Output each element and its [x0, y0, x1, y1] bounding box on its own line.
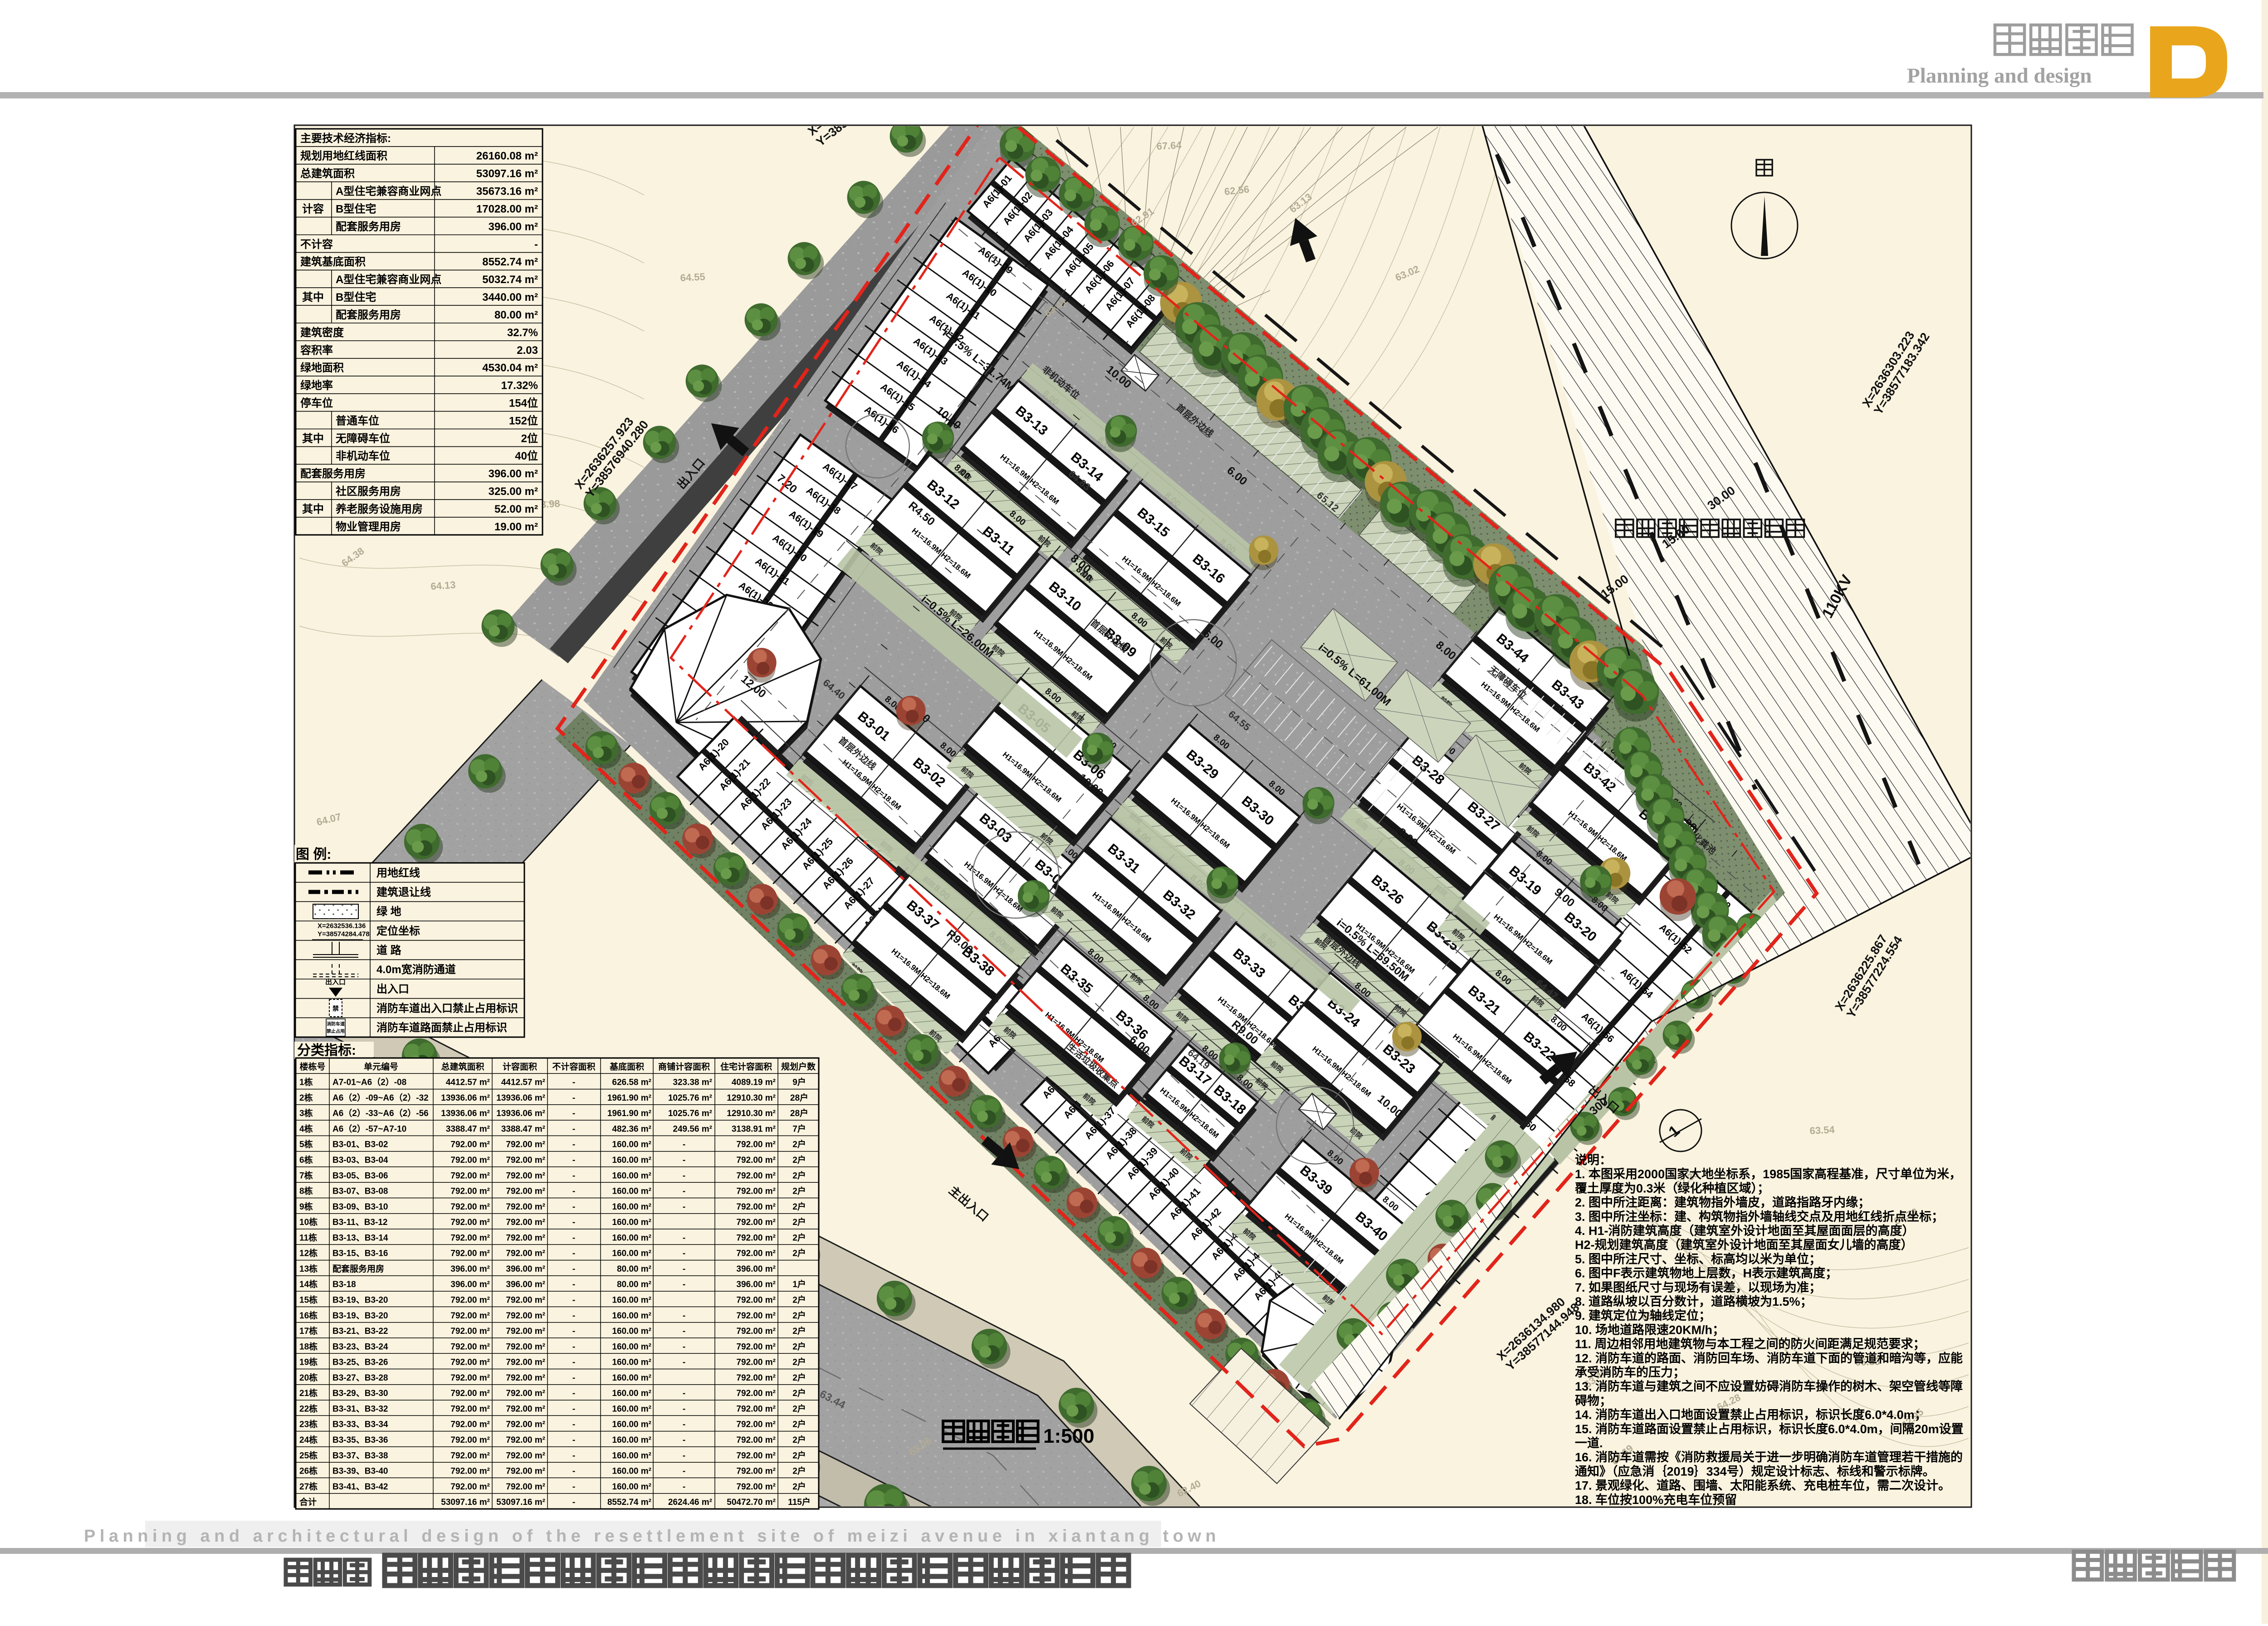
svg-text:53097.16 m²: 53097.16 m²	[476, 168, 538, 180]
svg-text:249.56 m²: 249.56 m²	[673, 1125, 712, 1134]
svg-text:H2-规划建筑高度（建筑室外设计地面至其屋面女儿墙的高度）: H2-规划建筑高度（建筑室外设计地面至其屋面女儿墙的高度）	[1575, 1238, 1913, 1252]
svg-text:792.00 m²: 792.00 m²	[450, 1327, 490, 1336]
svg-text:792.00 m²: 792.00 m²	[450, 1451, 490, 1460]
svg-text:-: -	[683, 1342, 685, 1352]
svg-text:13936.06 m²: 13936.06 m²	[496, 1093, 545, 1103]
svg-text:792.00 m²: 792.00 m²	[506, 1187, 545, 1196]
svg-text:160.00 m²: 160.00 m²	[612, 1482, 651, 1492]
svg-text:B3-25、B3-26: B3-25、B3-26	[332, 1358, 388, 1367]
svg-text:5栋: 5栋	[299, 1139, 313, 1150]
svg-text:160.00 m²: 160.00 m²	[612, 1249, 651, 1259]
svg-text:160.00 m²: 160.00 m²	[612, 1373, 651, 1383]
svg-text:B3-15、B3-16: B3-15、B3-16	[332, 1249, 388, 1259]
svg-text:80.00 m²: 80.00 m²	[494, 309, 538, 321]
svg-text:无障碍车位: 无障碍车位	[336, 432, 390, 445]
svg-text:19栋: 19栋	[299, 1357, 318, 1367]
svg-text:792.00 m²: 792.00 m²	[506, 1233, 545, 1243]
svg-text:2户: 2户	[792, 1481, 806, 1492]
svg-text:不计容面积: 不计容面积	[552, 1061, 595, 1072]
svg-text:80.00 m²: 80.00 m²	[617, 1280, 651, 1289]
svg-text:792.00 m²: 792.00 m²	[450, 1187, 490, 1196]
svg-text:10. 场地道路限速20KM/h；: 10. 场地道路限速20KM/h；	[1575, 1322, 1725, 1337]
svg-text:2位: 2位	[521, 432, 538, 445]
svg-text:792.00 m²: 792.00 m²	[736, 1389, 776, 1398]
svg-text:1栋: 1栋	[299, 1077, 313, 1087]
svg-text:-: -	[572, 1187, 575, 1196]
svg-text:160.00 m²: 160.00 m²	[612, 1171, 651, 1180]
svg-text:25栋: 25栋	[299, 1450, 318, 1460]
svg-text:规划用地红线面积: 规划用地红线面积	[300, 150, 387, 162]
svg-text:27栋: 27栋	[299, 1481, 318, 1492]
svg-text:-: -	[534, 238, 538, 250]
svg-text:-: -	[572, 1327, 575, 1336]
svg-text:2户: 2户	[792, 1326, 806, 1336]
svg-text:8552.74 m²: 8552.74 m²	[482, 256, 538, 268]
svg-text:12. 消防车道的路面、消防回车场、消防车道下面的管道和暗沟: 12. 消防车道的路面、消防回车场、消防车道下面的管道和暗沟等，应能	[1575, 1351, 1963, 1365]
svg-text:B3-35、B3-36: B3-35、B3-36	[332, 1435, 388, 1445]
svg-text:160.00 m²: 160.00 m²	[612, 1342, 651, 1352]
svg-text:单元编号: 单元编号	[364, 1061, 398, 1072]
svg-text:15. 消防车道路面设置禁止占用标识，标识长度6.0*4.0: 15. 消防车道路面设置禁止占用标识，标识长度6.0*4.0m，间隔20m设置	[1575, 1422, 1964, 1436]
svg-text:-: -	[683, 1156, 685, 1165]
svg-text:19.00 m²: 19.00 m²	[494, 521, 538, 533]
svg-text:792.00 m²: 792.00 m²	[506, 1451, 545, 1460]
svg-text:396.00 m²: 396.00 m²	[489, 468, 538, 480]
svg-text:总建筑面积: 总建筑面积	[300, 167, 355, 180]
svg-text:160.00 m²: 160.00 m²	[612, 1420, 651, 1430]
svg-text:792.00 m²: 792.00 m²	[736, 1435, 776, 1445]
svg-text:792.00 m²: 792.00 m²	[736, 1358, 776, 1367]
svg-text:160.00 m²: 160.00 m²	[612, 1451, 651, 1460]
svg-text:B3-41、B3-42: B3-41、B3-42	[332, 1482, 388, 1492]
svg-text:792.00 m²: 792.00 m²	[506, 1156, 545, 1165]
svg-text:-: -	[683, 1358, 685, 1367]
svg-text:20栋: 20栋	[299, 1372, 318, 1383]
svg-text:住宅计容面积: 住宅计容面积	[720, 1061, 772, 1072]
svg-text:160.00 m²: 160.00 m²	[612, 1202, 651, 1212]
svg-text:合计: 合计	[299, 1497, 317, 1507]
svg-text:396.00 m²: 396.00 m²	[736, 1280, 776, 1289]
svg-text:建筑退让线: 建筑退让线	[376, 886, 431, 899]
svg-text:消防车道路面禁止占用标识: 消防车道路面禁止占用标识	[376, 1021, 507, 1034]
svg-text:物业管理用房: 物业管理用房	[336, 520, 401, 533]
svg-text:2户: 2户	[792, 1403, 806, 1414]
svg-text:定位坐标: 定位坐标	[376, 925, 420, 937]
svg-text:-: -	[683, 1202, 685, 1212]
svg-text:B3-21、B3-22: B3-21、B3-22	[332, 1327, 388, 1336]
svg-text:6栋: 6栋	[299, 1155, 313, 1165]
svg-text:3440.00 m²: 3440.00 m²	[482, 291, 538, 304]
svg-text:一道.: 一道.	[1575, 1436, 1603, 1450]
svg-text:出入口: 出入口	[325, 978, 346, 986]
svg-text:7栋: 7栋	[299, 1170, 313, 1180]
svg-text:2624.46 m²: 2624.46 m²	[668, 1498, 712, 1507]
svg-text:2.03: 2.03	[517, 344, 538, 357]
svg-text:配套服务用房: 配套服务用房	[300, 467, 366, 480]
svg-text:通知》（应急消｛2019｝334号）规定设计标志、标线和警示: 通知》（应急消｛2019｝334号）规定设计标志、标线和警示标牌。	[1575, 1464, 1935, 1478]
svg-text:792.00 m²: 792.00 m²	[450, 1296, 490, 1305]
svg-text:626.58 m²: 626.58 m²	[612, 1078, 651, 1087]
svg-text:-: -	[572, 1171, 575, 1180]
svg-text:-: -	[572, 1358, 575, 1367]
svg-text:792.00 m²: 792.00 m²	[450, 1156, 490, 1165]
svg-text:-: -	[572, 1140, 575, 1150]
svg-text:792.00 m²: 792.00 m²	[736, 1171, 776, 1180]
svg-text:792.00 m²: 792.00 m²	[450, 1467, 490, 1476]
svg-text:-: -	[572, 1093, 575, 1103]
svg-text:A型住宅兼容商业网点: A型住宅兼容商业网点	[336, 185, 441, 198]
svg-text:16栋: 16栋	[299, 1310, 318, 1321]
svg-text:792.00 m²: 792.00 m²	[506, 1404, 545, 1414]
svg-text:-: -	[683, 1482, 685, 1492]
svg-text:4栋: 4栋	[299, 1124, 313, 1134]
svg-text:绿地率: 绿地率	[300, 379, 333, 392]
svg-text:-: -	[572, 1404, 575, 1414]
svg-text:792.00 m²: 792.00 m²	[736, 1373, 776, 1383]
svg-text:Y=38574284.478: Y=38574284.478	[318, 930, 370, 938]
svg-text:图 例:: 图 例:	[296, 847, 331, 862]
svg-text:53097.16 m²: 53097.16 m²	[496, 1498, 545, 1507]
svg-text:8552.74 m²: 8552.74 m²	[607, 1498, 651, 1507]
svg-text:2户: 2户	[792, 1388, 806, 1398]
svg-text:35673.16 m²: 35673.16 m²	[476, 186, 538, 198]
svg-text:B3-07、B3-08: B3-07、B3-08	[332, 1187, 388, 1196]
svg-text:792.00 m²: 792.00 m²	[506, 1140, 545, 1150]
svg-text:B3-09、B3-10: B3-09、B3-10	[332, 1202, 388, 1212]
svg-text:-: -	[572, 1078, 575, 1087]
svg-text:-: -	[572, 1296, 575, 1305]
svg-text:5032.74 m²: 5032.74 m²	[482, 274, 538, 286]
svg-text:禁止占用: 禁止占用	[326, 1028, 345, 1034]
svg-text:-: -	[572, 1435, 575, 1445]
svg-text:停车位: 停车位	[300, 397, 333, 410]
svg-text:B3-27、B3-28: B3-27、B3-28	[332, 1373, 388, 1383]
svg-text:-: -	[683, 1451, 685, 1460]
svg-text:17. 景观绿化、道路、围墙、太阳能系统、充电桩车位，需二次: 17. 景观绿化、道路、围墙、太阳能系统、充电桩车位，需二次设计。	[1575, 1479, 1950, 1493]
svg-text:792.00 m²: 792.00 m²	[736, 1156, 776, 1165]
svg-text:商铺计容面积: 商铺计容面积	[658, 1061, 710, 1072]
svg-text:396.00 m²: 396.00 m²	[450, 1264, 490, 1274]
svg-text:分类指标:: 分类指标:	[297, 1043, 356, 1058]
svg-text:普通车位: 普通车位	[336, 414, 379, 427]
svg-text:792.00 m²: 792.00 m²	[450, 1140, 490, 1150]
svg-text:11. 周边相邻用地建筑物与本工程之间的防火间距满足规范要求: 11. 周边相邻用地建筑物与本工程之间的防火间距满足规范要求；	[1575, 1337, 1926, 1351]
svg-text:2. 图中所注距离：建筑物指外墙皮，道路指路牙内缘；: 2. 图中所注距离：建筑物指外墙皮，道路指路牙内缘；	[1575, 1195, 1870, 1210]
svg-text:792.00 m²: 792.00 m²	[506, 1358, 545, 1367]
svg-text:64.13: 64.13	[430, 579, 456, 592]
svg-text:5. 图中所注尺寸、坐标、标高均以米为单位；: 5. 图中所注尺寸、坐标、标高均以米为单位；	[1575, 1252, 1821, 1266]
svg-text:792.00 m²: 792.00 m²	[736, 1342, 776, 1352]
svg-text:2户: 2户	[792, 1248, 806, 1259]
svg-text:3388.47 m²: 3388.47 m²	[446, 1125, 490, 1134]
svg-text:32.7%: 32.7%	[507, 327, 538, 339]
svg-text:792.00 m²: 792.00 m²	[450, 1218, 490, 1227]
svg-text:792.00 m²: 792.00 m²	[506, 1296, 545, 1305]
svg-text:18栋: 18栋	[299, 1341, 318, 1352]
svg-text:1. 本图采用2000国家大地坐标系，1985国家高程基准，: 1. 本图采用2000国家大地坐标系，1985国家高程基准，尺寸单位为米，	[1575, 1167, 1961, 1181]
svg-text:22栋: 22栋	[299, 1403, 318, 1414]
svg-text:2户: 2户	[792, 1466, 806, 1476]
svg-text:承受消防车的压力；: 承受消防车的压力；	[1575, 1365, 1685, 1379]
svg-text:13936.06 m²: 13936.06 m²	[496, 1109, 545, 1118]
svg-text:63.54: 63.54	[1809, 1124, 1835, 1136]
svg-text:792.00 m²: 792.00 m²	[736, 1140, 776, 1150]
svg-text:792.00 m²: 792.00 m²	[506, 1482, 545, 1492]
svg-text:792.00 m²: 792.00 m²	[736, 1420, 776, 1430]
svg-text:B3-18: B3-18	[332, 1280, 356, 1289]
svg-text:792.00 m²: 792.00 m²	[506, 1327, 545, 1336]
svg-text:-: -	[572, 1373, 575, 1383]
svg-text:2户: 2户	[792, 1217, 806, 1227]
svg-text:A6（2）-09~A6（2）-32: A6（2）-09~A6（2）-32	[332, 1092, 429, 1103]
svg-text:B3-39、B3-40: B3-39、B3-40	[332, 1467, 388, 1476]
svg-text:160.00 m²: 160.00 m²	[612, 1296, 651, 1305]
svg-text:2户: 2户	[792, 1450, 806, 1460]
svg-text:792.00 m²: 792.00 m²	[736, 1218, 776, 1227]
svg-text:其中: 其中	[302, 291, 324, 304]
svg-text:计容面积: 计容面积	[503, 1061, 537, 1072]
svg-text:792.00 m²: 792.00 m²	[736, 1451, 776, 1460]
svg-text:9户: 9户	[792, 1077, 806, 1087]
svg-text:基底面积: 基底面积	[609, 1061, 644, 1072]
svg-text:-: -	[683, 1233, 685, 1243]
svg-text:社区服务用房: 社区服务用房	[336, 485, 401, 498]
svg-text:12910.30 m²: 12910.30 m²	[727, 1109, 776, 1118]
svg-text:-: -	[572, 1218, 575, 1227]
svg-text:-: -	[572, 1264, 575, 1274]
svg-text:B3-37、B3-38: B3-37、B3-38	[332, 1451, 388, 1460]
svg-text:50472.70 m²: 50472.70 m²	[727, 1498, 776, 1507]
svg-text:3138.91 m²: 3138.91 m²	[732, 1125, 776, 1134]
svg-text:配套服务用房: 配套服务用房	[332, 1264, 384, 1274]
svg-text:-: -	[572, 1420, 575, 1430]
svg-text:容积率: 容积率	[300, 344, 333, 357]
svg-text:160.00 m²: 160.00 m²	[612, 1358, 651, 1367]
svg-text:792.00 m²: 792.00 m²	[450, 1233, 490, 1243]
svg-text:160.00 m²: 160.00 m²	[612, 1311, 651, 1321]
svg-text:B3-19、B3-20: B3-19、B3-20	[332, 1296, 388, 1305]
svg-text:26160.08 m²: 26160.08 m²	[476, 150, 538, 162]
svg-text:B3-03、B3-04: B3-03、B3-04	[332, 1156, 388, 1165]
svg-text:15栋: 15栋	[299, 1295, 318, 1305]
svg-text:13936.06 m²: 13936.06 m²	[441, 1093, 490, 1103]
svg-text:160.00 m²: 160.00 m²	[612, 1218, 651, 1227]
svg-text:792.00 m²: 792.00 m²	[450, 1482, 490, 1492]
svg-text:28户: 28户	[790, 1108, 808, 1118]
svg-text:-: -	[572, 1482, 575, 1492]
svg-text:325.00 m²: 325.00 m²	[489, 485, 538, 498]
svg-text:-: -	[572, 1156, 575, 1165]
svg-text:24栋: 24栋	[299, 1435, 318, 1445]
svg-text:-: -	[683, 1264, 685, 1274]
svg-text:2户: 2户	[792, 1139, 806, 1150]
svg-text:792.00 m²: 792.00 m²	[736, 1187, 776, 1196]
svg-text:-: -	[572, 1233, 575, 1243]
svg-text:12栋: 12栋	[299, 1248, 318, 1259]
svg-text:消防车道: 消防车道	[327, 1021, 345, 1027]
svg-text:A7-01~A6（2）-08: A7-01~A6（2）-08	[332, 1077, 406, 1087]
svg-text:63.48: 63.48	[1206, 1577, 1236, 1600]
svg-text:792.00 m²: 792.00 m²	[506, 1171, 545, 1180]
svg-text:23栋: 23栋	[299, 1419, 318, 1430]
svg-text:-: -	[683, 1389, 685, 1398]
svg-text:792.00 m²: 792.00 m²	[506, 1342, 545, 1352]
svg-text:52.00 m²: 52.00 m²	[494, 503, 538, 515]
svg-text:A型住宅兼容商业网点: A型住宅兼容商业网点	[336, 273, 441, 286]
svg-text:792.00 m²: 792.00 m²	[506, 1435, 545, 1445]
svg-text:17栋: 17栋	[299, 1326, 318, 1336]
svg-text:1户: 1户	[792, 1279, 806, 1289]
svg-text:792.00 m²: 792.00 m²	[736, 1327, 776, 1336]
svg-text:Planning and design: Planning and design	[1907, 64, 2092, 88]
svg-text:792.00 m²: 792.00 m²	[450, 1171, 490, 1180]
svg-text:-: -	[683, 1280, 685, 1289]
svg-text:4412.57 m²: 4412.57 m²	[501, 1078, 545, 1087]
svg-text:楼栋号: 楼栋号	[299, 1061, 325, 1072]
svg-text:21栋: 21栋	[299, 1388, 318, 1398]
svg-text:用地红线: 用地红线	[376, 867, 420, 879]
svg-text:建筑基底面积: 建筑基底面积	[300, 255, 366, 268]
svg-text:792.00 m²: 792.00 m²	[506, 1373, 545, 1383]
svg-text:2户: 2户	[792, 1295, 806, 1305]
svg-text:9栋: 9栋	[299, 1201, 313, 1212]
svg-text:792.00 m²: 792.00 m²	[736, 1404, 776, 1414]
svg-text:2户: 2户	[792, 1419, 806, 1430]
svg-text:152位: 152位	[509, 414, 538, 427]
svg-text:792.00 m²: 792.00 m²	[450, 1404, 490, 1414]
svg-text:792.00 m²: 792.00 m²	[736, 1249, 776, 1259]
svg-text:B3-33、B3-34: B3-33、B3-34	[332, 1420, 388, 1430]
svg-text:6. 图中F表示建筑物地上层数，H表示建筑高度；: 6. 图中F表示建筑物地上层数，H表示建筑高度；	[1575, 1266, 1838, 1280]
svg-text:道 路: 道 路	[376, 944, 402, 957]
svg-text:12910.30 m²: 12910.30 m²	[727, 1093, 776, 1103]
svg-text:-: -	[572, 1125, 575, 1134]
svg-text:792.00 m²: 792.00 m²	[506, 1249, 545, 1259]
svg-text:396.00 m²: 396.00 m²	[506, 1264, 545, 1274]
svg-text:792.00 m²: 792.00 m²	[450, 1311, 490, 1321]
svg-text:-: -	[572, 1498, 575, 1507]
svg-text:2户: 2户	[792, 1310, 806, 1321]
svg-text:-: -	[683, 1171, 685, 1180]
svg-text:碍物；: 碍物；	[1575, 1394, 1612, 1407]
svg-text:792.00 m²: 792.00 m²	[506, 1218, 545, 1227]
svg-text:13936.06 m²: 13936.06 m²	[441, 1109, 490, 1118]
svg-text:18. 车位按100%充电车位预留: 18. 车位按100%充电车位预留	[1575, 1493, 1737, 1507]
svg-text:792.00 m²: 792.00 m²	[450, 1202, 490, 1212]
svg-text:配套服务用房: 配套服务用房	[336, 220, 401, 233]
svg-text:792.00 m²: 792.00 m²	[450, 1420, 490, 1430]
svg-text:9. 建筑定位为轴线定位；: 9. 建筑定位为轴线定位；	[1575, 1308, 1711, 1322]
svg-text:4. H1-消防建筑高度（建筑室外设计地面至其屋面面层的高度: 4. H1-消防建筑高度（建筑室外设计地面至其屋面面层的高度）	[1575, 1224, 1915, 1238]
svg-text:B3-01、B3-02: B3-01、B3-02	[332, 1140, 388, 1150]
svg-text:792.00 m²: 792.00 m²	[450, 1435, 490, 1445]
svg-text:26栋: 26栋	[299, 1466, 318, 1476]
svg-text:A6（2）-57~A7-10: A6（2）-57~A7-10	[332, 1124, 406, 1134]
svg-text:396.00 m²: 396.00 m²	[450, 1280, 490, 1289]
svg-text:出入口: 出入口	[376, 983, 409, 995]
svg-text:2户: 2户	[792, 1435, 806, 1445]
svg-text:A6（2）-33~A6（2）-56: A6（2）-33~A6（2）-56	[332, 1108, 429, 1118]
svg-text:4530.04 m²: 4530.04 m²	[482, 362, 538, 374]
svg-text:396.00 m²: 396.00 m²	[489, 220, 538, 233]
svg-text:规划户数: 规划户数	[781, 1061, 816, 1072]
svg-text:-: -	[572, 1467, 575, 1476]
svg-text:7. 如果图纸尺寸与现场有误差，以现场为准；: 7. 如果图纸尺寸与现场有误差，以现场为准；	[1575, 1280, 1821, 1294]
svg-text:14栋: 14栋	[299, 1279, 318, 1289]
svg-text:-: -	[683, 1327, 685, 1336]
svg-text:3388.47 m²: 3388.47 m²	[501, 1125, 545, 1134]
svg-text:792.00 m²: 792.00 m²	[450, 1342, 490, 1352]
svg-text:不计容: 不计容	[300, 238, 333, 250]
svg-text:154位: 154位	[509, 397, 538, 410]
svg-text:2户: 2户	[792, 1232, 806, 1243]
svg-text:13栋: 13栋	[299, 1264, 318, 1274]
svg-text:其中: 其中	[302, 432, 324, 445]
svg-text:160.00 m²: 160.00 m²	[612, 1187, 651, 1196]
svg-text:792.00 m²: 792.00 m²	[736, 1467, 776, 1476]
svg-text:Planning and architectural des: Planning and architectural design of the…	[84, 1527, 1220, 1546]
svg-text:2户: 2户	[792, 1155, 806, 1165]
svg-text:4089.19 m²: 4089.19 m²	[732, 1078, 776, 1087]
svg-text:792.00 m²: 792.00 m²	[450, 1373, 490, 1383]
svg-text:说明：: 说明：	[1575, 1153, 1612, 1167]
svg-text:1:500: 1:500	[1043, 1425, 1095, 1447]
svg-text:28户: 28户	[790, 1092, 808, 1103]
svg-text:B3-29、B3-30: B3-29、B3-30	[332, 1389, 388, 1398]
svg-text:323.38 m²: 323.38 m²	[673, 1078, 712, 1087]
svg-text:非机动车位: 非机动车位	[336, 450, 390, 462]
svg-text:792.00 m²: 792.00 m²	[506, 1389, 545, 1398]
svg-text:-: -	[572, 1451, 575, 1460]
svg-text:-: -	[572, 1342, 575, 1352]
svg-text:17.32%: 17.32%	[501, 380, 538, 392]
svg-text:792.00 m²: 792.00 m²	[736, 1296, 776, 1305]
svg-text:10栋: 10栋	[299, 1217, 318, 1227]
svg-text:160.00 m²: 160.00 m²	[612, 1467, 651, 1476]
svg-text:63.40: 63.40	[87, 1023, 117, 1046]
svg-text:160.00 m²: 160.00 m²	[612, 1389, 651, 1398]
svg-text:2户: 2户	[792, 1372, 806, 1383]
svg-text:11栋: 11栋	[299, 1232, 317, 1243]
svg-text:16. 消防车道需按《消防救援局关于进一步明确消防车道管理若: 16. 消防车道需按《消防救援局关于进一步明确消防车道管理若干措施的	[1575, 1450, 1963, 1464]
svg-text:2栋: 2栋	[299, 1092, 313, 1103]
svg-text:B3-11、B3-12: B3-11、B3-12	[332, 1218, 387, 1227]
svg-text:8. 道路纵坡以百分数计，道路横坡为1.5%；: 8. 道路纵坡以百分数计，道路横坡为1.5%；	[1575, 1294, 1813, 1308]
svg-text:792.00 m²: 792.00 m²	[736, 1202, 776, 1212]
svg-text:-: -	[572, 1389, 575, 1398]
svg-text:160.00 m²: 160.00 m²	[612, 1156, 651, 1165]
svg-text:覆土厚度为0.3米（绿化种植区域）；: 覆土厚度为0.3米（绿化种植区域）；	[1575, 1181, 1769, 1195]
svg-text:1025.76 m²: 1025.76 m²	[668, 1109, 712, 1118]
svg-text:B3-05、B3-06: B3-05、B3-06	[332, 1171, 388, 1180]
svg-text:-: -	[572, 1280, 575, 1289]
svg-text:792.00 m²: 792.00 m²	[506, 1311, 545, 1321]
svg-text:396.00 m²: 396.00 m²	[506, 1280, 545, 1289]
svg-text:绿地面积: 绿地面积	[300, 362, 344, 374]
svg-text:2户: 2户	[792, 1357, 806, 1367]
svg-text:B型住宅: B型住宅	[336, 291, 376, 304]
svg-text:14. 消防车道出入口地面设置禁止占用标识，标识长度6.0*: 14. 消防车道出入口地面设置禁止占用标识，标识长度6.0*4.0m；	[1575, 1408, 1927, 1422]
svg-text:792.00 m²: 792.00 m²	[506, 1202, 545, 1212]
svg-text:-: -	[683, 1404, 685, 1414]
svg-text:-: -	[572, 1249, 575, 1259]
svg-text:1961.90 m²: 1961.90 m²	[607, 1093, 651, 1103]
svg-text:17028.00 m²: 17028.00 m²	[476, 203, 538, 215]
svg-text:配套服务用房: 配套服务用房	[336, 309, 401, 321]
svg-text:792.00 m²: 792.00 m²	[736, 1482, 776, 1492]
svg-text:-: -	[572, 1311, 575, 1321]
svg-text:396.00 m²: 396.00 m²	[736, 1264, 776, 1274]
